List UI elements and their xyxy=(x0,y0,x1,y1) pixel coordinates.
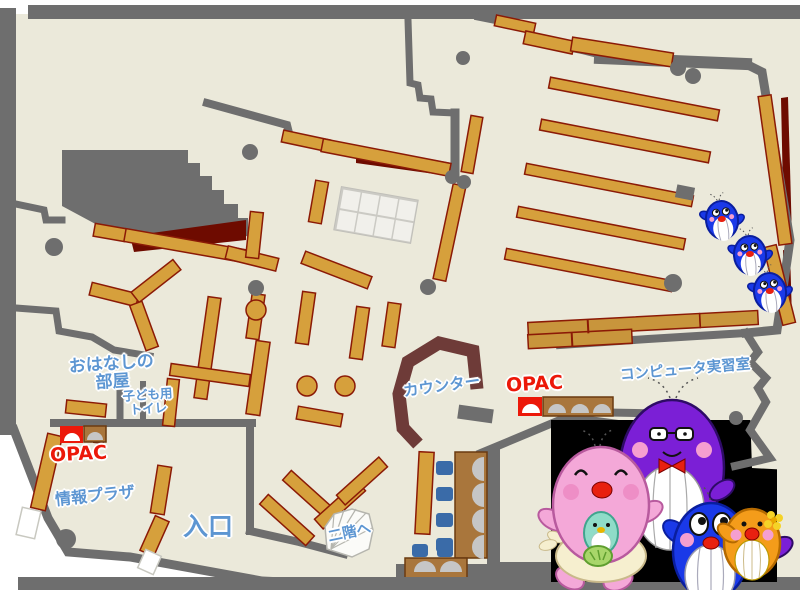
label-kids-toilet: 子ども用 トイレ xyxy=(115,386,181,417)
floor-map: おはなしの 部屋 子ども用 トイレ OPAC 情報プラザ 入口 二階へ カウンタ… xyxy=(0,0,800,590)
opac-left-terminal xyxy=(60,426,106,443)
label-opac-left: OPAC xyxy=(50,443,108,466)
wall-left xyxy=(0,8,16,435)
label-entrance: 入口 xyxy=(183,513,233,540)
opac-center-terminal xyxy=(518,397,613,416)
label-opac-center: OPAC xyxy=(506,373,564,396)
wall-top xyxy=(28,5,800,19)
